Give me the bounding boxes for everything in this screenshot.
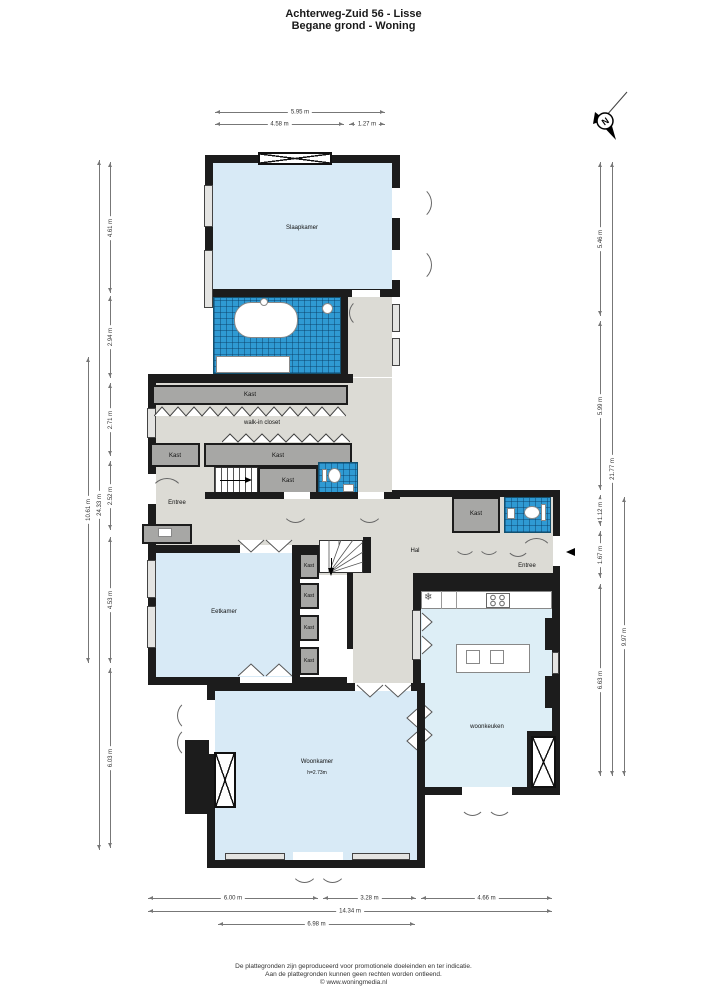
wardrobe-rail-icon: [154, 406, 346, 417]
wall: [392, 490, 560, 497]
hal-corridor-floor: [353, 565, 415, 687]
counter-divider: [456, 591, 457, 609]
room-label-walk-in-closet: walk-in closet: [244, 420, 280, 426]
dimension-line: 2.52 m: [110, 461, 111, 530]
stairs-direction-line: [220, 480, 246, 481]
room-label-slaapkamer: Slaapkamer: [286, 225, 318, 231]
winder-stairs-icon: [319, 540, 363, 573]
dim-label: 6.63 m: [598, 668, 604, 692]
dimension-line: 4.61 m: [110, 162, 111, 293]
dim-label: 6.98 m: [304, 922, 328, 928]
door-arc: [460, 791, 485, 816]
window: [147, 606, 156, 648]
wall: [545, 676, 560, 708]
closet-label: Kast: [304, 658, 314, 664]
shutter-door-icon: [421, 612, 434, 656]
footer-disclaimer-line1: De plattegronden zijn geproduceerd voor …: [0, 963, 707, 970]
dim-label: 4.61 m: [108, 215, 114, 239]
dim-label: 10.61 m: [86, 496, 92, 524]
entrance-arrow-icon: [566, 548, 575, 556]
dimension-line: 5.99 m: [600, 321, 601, 490]
dimension-line: 4.66 m: [421, 898, 552, 899]
dim-label: 24.33 m: [97, 491, 103, 519]
door-arc: [356, 496, 383, 523]
door-arc: [319, 856, 346, 883]
stairs-direction-arrow: [328, 568, 334, 576]
dim-label: 2.71 m: [108, 407, 114, 431]
dimension-line: 9.97 m: [624, 497, 625, 776]
dimension-line: 1.27 m: [349, 124, 385, 125]
room-label-woonkeuken: woonkeuken: [470, 724, 504, 730]
dimension-line: 10.61 m: [88, 357, 89, 663]
window: [204, 250, 213, 308]
closet-label: Kast: [470, 511, 482, 517]
closet-label: Kast: [282, 478, 294, 484]
toilet-icon: [524, 506, 540, 519]
wardrobe-rail-icon: [222, 433, 350, 443]
door-arc: [478, 533, 500, 555]
dim-label: 3.28 m: [357, 896, 381, 902]
dim-label: 4.58 m: [267, 122, 291, 128]
closet-label: Kast: [304, 563, 314, 569]
dimension-line: 2.71 m: [110, 383, 111, 456]
double-door-icon: [356, 684, 412, 699]
dim-label: 4.66 m: [474, 896, 498, 902]
double-door-icon: [237, 539, 293, 554]
dim-label: 9.97 m: [622, 624, 628, 648]
dim-label: 4.53 m: [108, 588, 114, 612]
dim-label: 2.94 m: [108, 325, 114, 349]
bathtub-icon: [234, 302, 298, 338]
dimension-line: 5.95 m: [215, 112, 385, 113]
washbasin-icon: [507, 508, 515, 519]
window: [225, 853, 285, 860]
wall: [341, 297, 348, 374]
dimension-line: 1.12 m: [600, 495, 601, 526]
door-arc: [454, 533, 476, 555]
dim-label: 1.27 m: [355, 122, 379, 128]
vanity-sink-icon: [216, 356, 290, 373]
closet-label: Kast: [272, 453, 284, 459]
dimension-line: 14.34 m: [148, 911, 552, 912]
wall: [363, 537, 371, 573]
dimension-line: 6.00 m: [148, 898, 318, 899]
dim-label: 5.99 m: [598, 393, 604, 417]
closet-label: Kast: [169, 453, 181, 459]
sink-icon: [466, 650, 480, 664]
door-arc: [398, 248, 432, 282]
double-door-icon: [237, 662, 293, 677]
dimension-line: 3.28 m: [323, 898, 416, 899]
wall: [148, 374, 353, 383]
compass-icon: N: [583, 88, 633, 144]
freezer-snowflake-icon: ❄: [424, 592, 432, 603]
window: [352, 853, 410, 860]
window: [392, 304, 400, 332]
dim-label: 6.03 m: [108, 746, 114, 770]
door-opening: [352, 290, 380, 297]
door-arc: [150, 478, 184, 512]
toilet-tank-icon: [541, 504, 546, 521]
ceiling-height-label: h=2.73m: [307, 770, 327, 776]
door-arc: [282, 496, 309, 523]
door-arc: [398, 186, 432, 220]
dim-label: 2.52 m: [108, 483, 114, 507]
window: [552, 652, 559, 674]
dimension-line: 6.63 m: [600, 584, 601, 776]
fireplace-icon: [531, 736, 556, 788]
sink-icon: [490, 650, 504, 664]
shower-icon: [322, 303, 333, 314]
dim-label: 1.67 m: [598, 542, 604, 566]
toilet-tank-icon: [322, 469, 327, 482]
room-label-eetkamer: Eetkamer: [211, 609, 237, 615]
dim-label: 5.46 m: [598, 227, 604, 251]
dimension-line: 5.46 m: [600, 162, 601, 316]
counter-divider: [441, 591, 442, 609]
cabinet-sink-icon: [158, 528, 172, 537]
window: [412, 610, 421, 660]
fireplace-icon: [214, 752, 236, 808]
shutter-door-icon: [406, 708, 419, 752]
page-title-line2: Begane grond - Woning: [0, 20, 707, 32]
dimension-line: 24.33 m: [99, 160, 100, 850]
wall: [545, 618, 560, 650]
footer-disclaimer-line2: Aan de plattegronden kunnen geen rechten…: [0, 971, 707, 978]
wall: [347, 573, 353, 649]
front-door-opening: [553, 536, 560, 566]
door-arc: [487, 791, 512, 816]
dimension-line: 4.58 m: [215, 124, 344, 125]
room-label-hal: Hal: [410, 548, 419, 554]
dimension-line: 4.53 m: [110, 537, 111, 663]
washbasin-icon: [343, 484, 354, 492]
wall-chimney: [185, 740, 209, 814]
dimension-line: 2.94 m: [110, 296, 111, 378]
closet-label: Kast: [304, 593, 314, 599]
toilet-icon: [328, 468, 341, 483]
faucet-icon: [260, 298, 268, 306]
dimension-line: 1.67 m: [600, 531, 601, 578]
window: [204, 185, 213, 227]
room-label-entree: Entree: [168, 500, 186, 506]
stairs-direction-arrow: [245, 477, 252, 483]
dimension-line: 21.77 m: [612, 162, 613, 776]
dim-label: 5.95 m: [288, 110, 312, 116]
window: [147, 560, 156, 598]
closet-label: Kast: [304, 625, 314, 631]
dimension-line: 6.98 m: [218, 924, 415, 925]
window: [392, 338, 400, 366]
dim-label: 1.12 m: [598, 498, 604, 522]
page-title-line1: Achterweg-Zuid 56 - Lisse: [0, 8, 707, 20]
floorplan-page: Achterweg-Zuid 56 - Lisse Begane grond -…: [0, 0, 707, 1000]
door-arc: [291, 856, 318, 883]
footer-credit: © www.woningmedia.nl: [0, 979, 707, 986]
dimension-line: 6.03 m: [110, 668, 111, 848]
room-label-entree: Entree: [518, 563, 536, 569]
dormer-window-icon: [258, 152, 332, 165]
dim-label: 6.00 m: [221, 896, 245, 902]
room-label-woonkamer: Woonkamer: [301, 759, 333, 765]
door-arc: [349, 299, 377, 327]
dim-label: 21.77 m: [610, 455, 616, 483]
dim-label: 14.34 m: [336, 909, 364, 915]
closet-label: Kast: [244, 392, 256, 398]
stove-icon: [486, 593, 510, 608]
